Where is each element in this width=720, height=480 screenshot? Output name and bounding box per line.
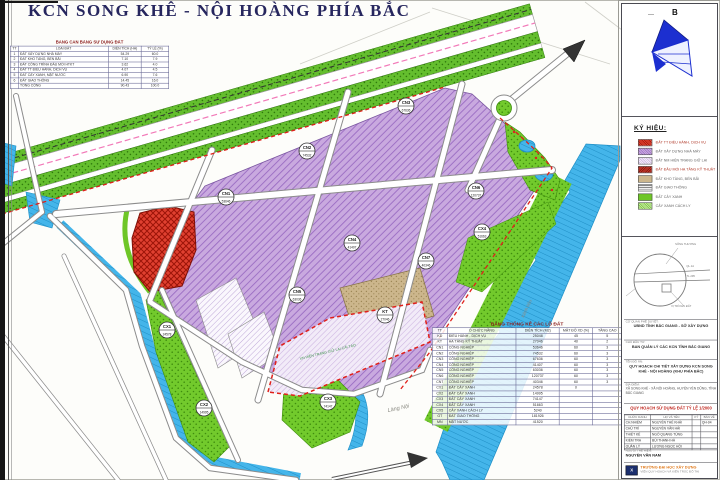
titleblock-location: ĐỊA ĐIỂM: XÃ SONG KHÊ - XÃ NỘI HOÀNG, HU… xyxy=(624,382,718,403)
organization-subtitle: VIỆN QUY HOẠCH VÀ KIẾN TRÚC ĐÔ THỊ xyxy=(640,470,699,474)
table-cell: 90.43 xyxy=(108,83,141,88)
detail-label: VỊ TRÍ KHU ĐẤT xyxy=(671,304,691,308)
legend-swatch-purple xyxy=(638,148,652,155)
table-row: MNMẶT NƯỚC41520 xyxy=(432,419,622,425)
note-label: NGƯỜI THỂ HIỆN: xyxy=(626,449,717,452)
university-logo: X xyxy=(626,465,638,475)
svg-text:CN6: CN6 xyxy=(472,185,481,190)
parcel-label: CX451663 xyxy=(474,224,490,240)
legend-label: ĐẤT NM HIỆN TRẠNG GIỮ LẠI xyxy=(656,159,708,163)
drawing-side-panel: — B KÝ HIỆU: ĐẤT TT ĐIỀU HÀNH, DỊCH VỤĐẤ… xyxy=(621,3,718,479)
detail-label: TL.295 xyxy=(686,274,694,278)
staff-table: CHỨC DANHHỌ VÀ TÊNKÝBẢN VẼCH.NHIỆMNGUYỄN… xyxy=(624,415,718,451)
north-arrow-icon xyxy=(634,14,704,112)
parcel-label: CN274532 xyxy=(299,143,315,159)
svg-text:CX2: CX2 xyxy=(200,402,209,407)
legend-title: KÝ HIỆU: xyxy=(634,125,667,132)
detail-label: SÔNG THƯƠNG xyxy=(675,242,696,246)
parcel-label: CN563036 xyxy=(289,287,305,303)
svg-text:CN2: CN2 xyxy=(303,145,312,150)
panel-divider xyxy=(622,116,717,117)
legend-label: ĐẤT GIAO THÔNG xyxy=(656,186,687,190)
parcel-label: CX374147 xyxy=(320,394,336,410)
column-header: DIỆN TÍCH (HA) xyxy=(108,46,141,51)
drawing-title: QUY HOẠCH SỬ DỤNG ĐẤT TỶ LỆ 1/2000 xyxy=(624,403,718,414)
titleblock-text: XÃ SONG KHÊ - XÃ NỘI HOÀNG, HUYỆN YÊN DŨ… xyxy=(626,387,717,395)
svg-text:CX4: CX4 xyxy=(478,226,487,231)
svg-text:24578: 24578 xyxy=(163,333,172,337)
titleblock-text: QUY HOẠCH CHI TIẾT XÂY DỰNG KCN SONG KHÊ… xyxy=(626,365,717,374)
landuse-balance-table: BẢNG CÂN BẰNG SỬ DỤNG ĐẤT TTLOẠI ĐẤTDIỆN… xyxy=(10,40,172,122)
svg-text:CN3: CN3 xyxy=(402,100,411,105)
lots-statistics-table: BẢNG THỐNG KÊ CÁC LÔ ĐẤT TTÔ CHỨC NĂNGDI… xyxy=(432,321,622,480)
table-cell xyxy=(10,83,18,88)
legend-label: ĐẤT TT ĐIỀU HÀNH, DỊCH VỤ xyxy=(656,141,706,145)
svg-text:KT: KT xyxy=(382,309,388,314)
titleblock-project: TÊN ĐỒ ÁN: QUY HOẠCH CHI TIẾT XÂY DỰNG K… xyxy=(624,359,718,382)
title-block: CƠ QUAN PHÊ DUYỆT: UBND TỈNH BẮC GIANG -… xyxy=(624,319,718,474)
parcel-label: CN6120737 xyxy=(468,183,484,199)
detail-label: QL.1A xyxy=(686,264,694,268)
legend-label: ĐẤT XÂY DỰNG NHÀ MÁY xyxy=(656,150,701,154)
landuse-table: TTLOẠI ĐẤTDIỆN TÍCH (HA)TỶ LỆ (%)1ĐẤT XÂ… xyxy=(10,46,169,89)
parcel-label: CX214995 xyxy=(196,400,212,416)
lots-table-title: BẢNG THỐNG KÊ CÁC LÔ ĐẤT xyxy=(432,321,622,326)
table-cell: MN xyxy=(432,419,447,425)
svg-text:CN4: CN4 xyxy=(348,237,357,242)
titleblock-text: BAN QUẢN LÝ CÁC KCN TỈNH BẮC GIANG xyxy=(626,345,717,350)
legend-item: ĐẤT NM HIỆN TRẠNG GIỮ LẠI xyxy=(638,156,720,165)
titleblock-label: CƠ QUAN PHÊ DUYỆT: xyxy=(626,320,717,323)
legend-label: ĐẤT KHO TÀNG, BẾN BÃI xyxy=(656,177,699,181)
scan-edge xyxy=(0,0,5,480)
location-diagram: SÔNG THƯƠNG QL.1A TL.295 VỊ TRÍ KHU ĐẤT xyxy=(622,240,717,318)
legend-label: ĐẤT ĐẦU MỐI HẠ TẦNG KỸ THUẬT xyxy=(656,168,716,172)
panel-divider xyxy=(622,236,717,237)
table-cell: MẶT NƯỚC xyxy=(447,419,516,425)
parcel-label: CX124578 xyxy=(159,322,175,338)
titleblock-text: UBND TỈNH BẮC GIANG - SỞ XÂY DỰNG xyxy=(626,324,717,329)
legend-item: ĐẤT GIAO THÔNG xyxy=(638,183,720,192)
organization-section: X TRƯỜNG ĐẠI HỌC XÂY DỰNG VIỆN QUY HOẠCH… xyxy=(624,462,718,476)
svg-text:74532: 74532 xyxy=(303,154,312,158)
legend-label: ĐẤT CÂY XANH xyxy=(656,195,683,199)
legend-swatch-road xyxy=(638,184,652,191)
south-arrow-icon xyxy=(407,452,428,468)
table-cell: TỔNG CỘNG xyxy=(19,83,109,88)
legend-swatch-darkred xyxy=(638,166,652,173)
legend-item: ĐẤT TT ĐIỀU HÀNH, DỊCH VỤ xyxy=(638,138,720,147)
svg-text:120737: 120737 xyxy=(471,194,482,198)
table-row: TỔNG CỘNG90.43100.0 xyxy=(10,83,168,88)
lots-table: TTÔ CHỨC NĂNGDIỆN TÍCH (M2)MẬT ĐỘ XD (%)… xyxy=(432,327,622,425)
legend-item: CÂY XANH CÁCH LY xyxy=(638,202,720,211)
legend-item: ĐẤT KHO TÀNG, BẾN BÃI xyxy=(638,174,720,183)
legend-swatch-green xyxy=(638,193,652,200)
table-cell: 41520 xyxy=(516,419,559,425)
legend-swatch-red-hatch xyxy=(638,139,652,146)
svg-text:51663: 51663 xyxy=(478,235,487,239)
svg-text:53646: 53646 xyxy=(222,200,231,204)
svg-text:40346: 40346 xyxy=(422,264,431,268)
svg-text:CN5: CN5 xyxy=(293,289,302,294)
legend: ĐẤT TT ĐIỀU HÀNH, DỊCH VỤĐẤT XÂY DỰNG NH… xyxy=(638,138,720,211)
page-title: KCN SONG KHÊ - NỘI HOÀNG PHÍA BẮC xyxy=(28,1,428,21)
note-name: NGUYỄN VĂN NAM xyxy=(626,454,717,458)
village-label: Làng Nội xyxy=(387,403,411,414)
parcel-label: KT27046 xyxy=(377,307,393,323)
legend-swatch-green-light xyxy=(638,202,652,209)
legend-item: ĐẤT CÂY XANH xyxy=(638,192,720,201)
titleblock-label: ĐỊA ĐIỂM: xyxy=(626,383,717,386)
svg-text:CN1: CN1 xyxy=(222,191,231,196)
titleblock-label: CHỦ ĐẦU TƯ: xyxy=(626,341,717,344)
svg-text:41407: 41407 xyxy=(348,246,357,250)
roundabout xyxy=(491,95,517,121)
parcel-label: CN153646 xyxy=(218,189,234,205)
legend-item: ĐẤT XÂY DỰNG NHÀ MÁY xyxy=(638,147,720,156)
svg-text:63036: 63036 xyxy=(293,298,302,302)
parcel-label: CN367636 xyxy=(398,98,414,114)
svg-text:27046: 27046 xyxy=(381,318,390,322)
svg-text:67636: 67636 xyxy=(402,109,411,113)
svg-text:CX3: CX3 xyxy=(324,396,333,401)
exit-road-south xyxy=(332,452,428,479)
titleblock-label: TÊN ĐỒ ÁN: xyxy=(626,361,717,364)
landuse-table-title: BẢNG CÂN BẰNG SỬ DỤNG ĐẤT xyxy=(10,40,169,45)
titleblock-investor: CHỦ ĐẦU TƯ: BAN QUẢN LÝ CÁC KCN TỈNH BẮC… xyxy=(624,340,718,360)
titleblock-approver: CƠ QUAN PHÊ DUYỆT: UBND TỈNH BẮC GIANG -… xyxy=(624,319,718,340)
parcel-label: CN740346 xyxy=(418,253,434,269)
svg-text:14995: 14995 xyxy=(200,411,209,415)
svg-text:CN7: CN7 xyxy=(422,255,431,260)
table-cell xyxy=(593,419,622,425)
scanned-masterplan-sheet: { "page": { "title": "KCN SONG KHÊ - NỘI… xyxy=(0,0,720,480)
legend-swatch-tan xyxy=(638,175,652,182)
parcel-label: CN441407 xyxy=(344,235,360,251)
svg-text:CX1: CX1 xyxy=(163,324,172,329)
legend-label: CÂY XANH CÁCH LY xyxy=(656,204,691,208)
note-section: NGƯỜI THỂ HIỆN: NGUYỄN VĂN NAM xyxy=(624,448,718,462)
staff-section: CHỨC DANHHỌ VÀ TÊNKÝBẢN VẼCH.NHIỆMNGUYỄN… xyxy=(624,414,718,448)
table-cell xyxy=(559,419,592,425)
legend-swatch-purple-light xyxy=(638,157,652,164)
legend-item: ĐẤT ĐẦU MỐI HẠ TẦNG KỸ THUẬT xyxy=(638,165,720,174)
svg-text:74147: 74147 xyxy=(324,405,333,409)
table-cell: 100.0 xyxy=(141,83,168,88)
